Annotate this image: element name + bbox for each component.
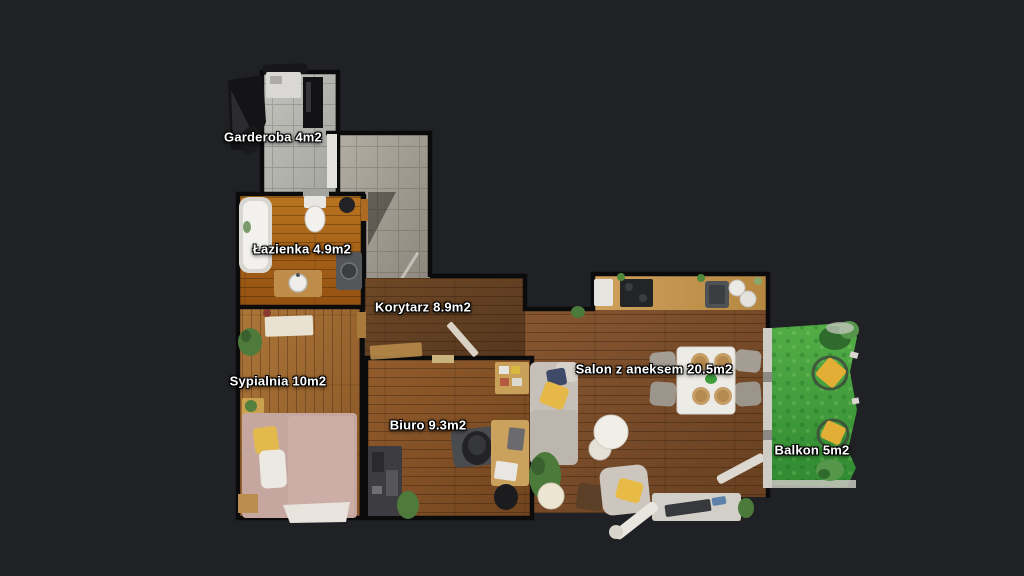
guest-chair	[494, 484, 518, 510]
counter-plant	[617, 273, 625, 281]
doorway-garderoba-bottom	[303, 189, 329, 197]
dining-chair	[734, 381, 762, 407]
doorway-lazienka	[361, 199, 368, 221]
dining-chair	[734, 349, 762, 374]
office-chair	[462, 431, 492, 465]
dining-chair	[649, 351, 677, 375]
desk	[491, 420, 529, 486]
salon-plant-small	[571, 306, 585, 318]
washing-machine	[336, 252, 362, 290]
bedroom-rug	[265, 315, 314, 337]
nightstand	[238, 494, 258, 513]
coffee-table-large	[594, 415, 628, 449]
placemat-inner	[694, 356, 706, 368]
counter-plant	[754, 277, 762, 285]
cooktop	[620, 279, 653, 307]
railing-bit	[852, 397, 860, 404]
office-plant	[397, 491, 419, 519]
doorway-sypialnia	[357, 312, 366, 338]
table-centerpiece	[705, 374, 717, 384]
pouf	[538, 483, 564, 509]
bathtub	[239, 197, 272, 273]
tv-console	[652, 493, 741, 521]
placemat-inner	[717, 356, 729, 368]
sink-vanity	[274, 270, 322, 297]
bedroom-pot	[263, 309, 271, 317]
doorway-garderoba	[327, 134, 337, 188]
placemat-inner	[695, 390, 707, 402]
counter-plant	[697, 274, 705, 282]
sofa	[530, 362, 578, 465]
bedroom-plant	[238, 328, 262, 356]
salon-plant-right	[738, 498, 754, 518]
bed-pillow-white	[259, 449, 288, 489]
doorway-biuro	[432, 355, 454, 363]
dining-chair	[649, 381, 677, 407]
balcony-sill	[772, 480, 856, 488]
office-shelf-top	[495, 362, 529, 394]
floorplan-viewport: Garderoba 4m2 Łazienka 4.9m2 Korytarz 8.…	[0, 0, 1024, 576]
floorplan-svg	[0, 0, 1024, 576]
side-table-dark	[575, 482, 604, 511]
bed-sheet	[283, 502, 350, 523]
kitchen-appliance-white	[594, 279, 613, 306]
office-shelving	[368, 446, 402, 516]
balcony-chair-top	[813, 357, 847, 389]
bathroom-bin	[339, 197, 355, 213]
placemat-inner	[717, 390, 729, 402]
balcony-door-frame	[763, 328, 772, 488]
balcony-plant-bottom	[816, 459, 844, 481]
dresser-white	[266, 72, 301, 98]
toilet	[304, 196, 326, 232]
kitchen-sink	[705, 281, 729, 308]
bed	[242, 413, 357, 523]
dish	[740, 291, 756, 307]
laptop	[494, 461, 518, 482]
